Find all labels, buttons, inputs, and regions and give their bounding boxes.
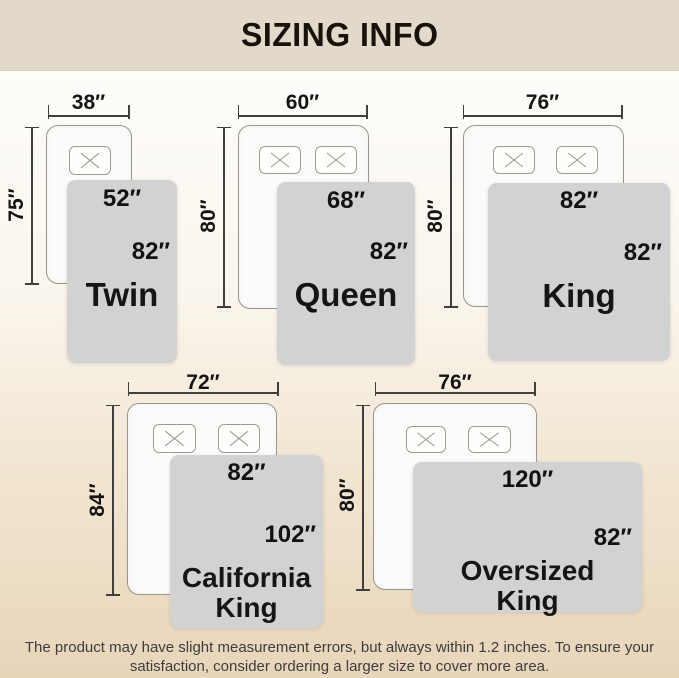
width-dimension-line <box>238 115 367 117</box>
disclaimer-line-2: satisfaction, consider ordering a larger… <box>0 657 679 676</box>
length-dimension-line <box>362 405 364 590</box>
bed-name: Queen <box>277 278 415 313</box>
disclaimer-line-1: The product may have slight measurement … <box>0 638 679 657</box>
width-dimension-line <box>128 392 278 394</box>
bed-diagram-twin: 38″ 75″ 52″ 82″ Twin <box>10 88 190 378</box>
bed-name: Twin <box>67 278 177 313</box>
length-dimension-line <box>223 127 225 307</box>
pillow-x-icon <box>557 147 597 173</box>
blanket-width-label: 120″ <box>413 466 642 494</box>
blanket: 52″ 82″ Twin <box>67 180 177 363</box>
blanket-length-label: 82″ <box>132 238 170 266</box>
bed-name: Oversized King <box>413 556 642 615</box>
mattress-width-label: 76″ <box>463 92 622 114</box>
mattress-width-label: 76″ <box>375 372 535 394</box>
pillow-x-icon <box>154 425 195 452</box>
bed-diagram-king: 76″ 80″ 82″ 82″ King <box>430 88 679 378</box>
pillow-x-icon <box>70 147 110 174</box>
length-dimension-line <box>112 405 114 595</box>
blanket-width-label: 82″ <box>170 459 323 487</box>
blanket: 82″ 102″ California King <box>170 455 323 628</box>
length-dimension-line <box>31 127 33 284</box>
header-bar: SIZING INFO <box>0 0 679 71</box>
disclaimer-note: The product may have slight measurement … <box>0 638 679 676</box>
mattress-width-label: 60″ <box>238 92 367 114</box>
pillow-x-icon <box>494 147 534 173</box>
pillow-icon <box>259 146 301 174</box>
bed-diagram-queen: 60″ 80″ 68″ 82″ Queen <box>200 88 420 378</box>
bed-diagram-oversized-king: 76″ 80″ 120″ 82″ Oversized King <box>345 372 679 634</box>
mattress-width-label: 72″ <box>128 372 278 394</box>
pillow-icon <box>406 426 446 453</box>
mattress-length-label: 80″ <box>198 186 220 246</box>
blanket-width-label: 82″ <box>488 187 670 215</box>
mattress-length-label: 80″ <box>425 186 447 246</box>
blanket-length-label: 82″ <box>370 238 408 266</box>
pillow-icon <box>556 146 598 174</box>
width-dimension-line <box>375 392 535 394</box>
blanket-length-label: 82″ <box>624 239 662 267</box>
bed-name: King <box>488 279 670 314</box>
blanket-length-label: 82″ <box>594 524 632 552</box>
blanket-width-label: 52″ <box>67 185 177 213</box>
sizing-info-page: SIZING INFO 38″ 75″ 52″ 82″ Twin 60″ 80″ <box>0 0 679 678</box>
mattress-length-label: 84″ <box>87 470 109 530</box>
pillow-icon <box>315 146 357 174</box>
pillow-x-icon <box>469 427 510 452</box>
page-title: SIZING INFO <box>241 16 438 54</box>
width-dimension-line <box>463 115 622 117</box>
mattress-length-label: 75″ <box>6 175 28 235</box>
bed-name: California King <box>170 563 323 622</box>
bed-diagram-california-king: 72″ 84″ 82″ 102″ California King <box>85 372 335 634</box>
length-dimension-line <box>450 127 452 307</box>
pillow-x-icon <box>316 147 356 173</box>
pillow-icon <box>69 146 111 175</box>
pillow-x-icon <box>407 427 445 452</box>
pillow-icon <box>468 426 511 453</box>
pillow-icon <box>493 146 535 174</box>
blanket: 68″ 82″ Queen <box>277 182 415 365</box>
mattress-width-label: 38″ <box>48 92 129 114</box>
pillow-x-icon <box>219 425 259 452</box>
blanket: 82″ 82″ King <box>488 183 670 361</box>
width-dimension-line <box>48 115 129 117</box>
blanket-width-label: 68″ <box>277 187 415 215</box>
pillow-icon <box>153 424 196 453</box>
pillow-x-icon <box>260 147 300 173</box>
blanket: 120″ 82″ Oversized King <box>413 462 642 612</box>
mattress-length-label: 80″ <box>337 465 359 525</box>
pillow-icon <box>218 424 260 453</box>
blanket-length-label: 102″ <box>264 521 316 549</box>
